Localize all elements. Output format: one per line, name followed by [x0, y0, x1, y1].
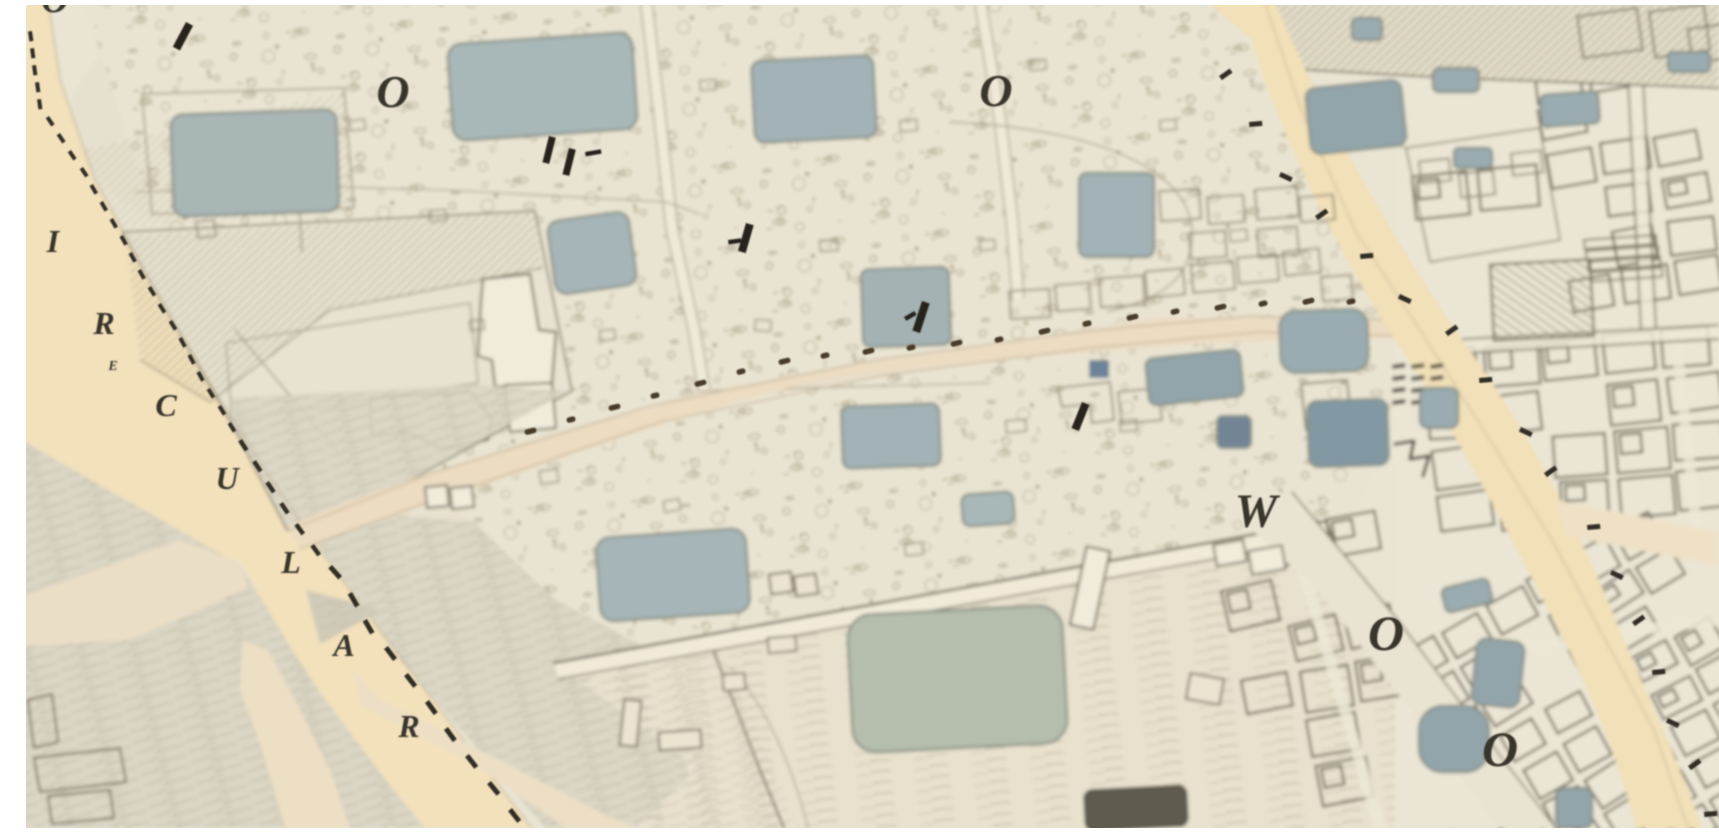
svg-text:E: E: [107, 359, 117, 374]
svg-text:U: U: [215, 460, 240, 496]
svg-text:R: R: [92, 305, 114, 341]
svg-text:O: O: [979, 65, 1012, 116]
svg-text:A: A: [331, 627, 354, 663]
svg-text:C: C: [155, 387, 177, 423]
svg-text:O: O: [376, 66, 409, 117]
svg-text:I: I: [46, 223, 61, 259]
svg-text:L: L: [280, 544, 301, 580]
svg-text:W: W: [1235, 485, 1281, 538]
svg-text:O: O: [1368, 605, 1404, 661]
svg-text:O: O: [1482, 721, 1518, 777]
svg-text:R: R: [397, 708, 419, 744]
